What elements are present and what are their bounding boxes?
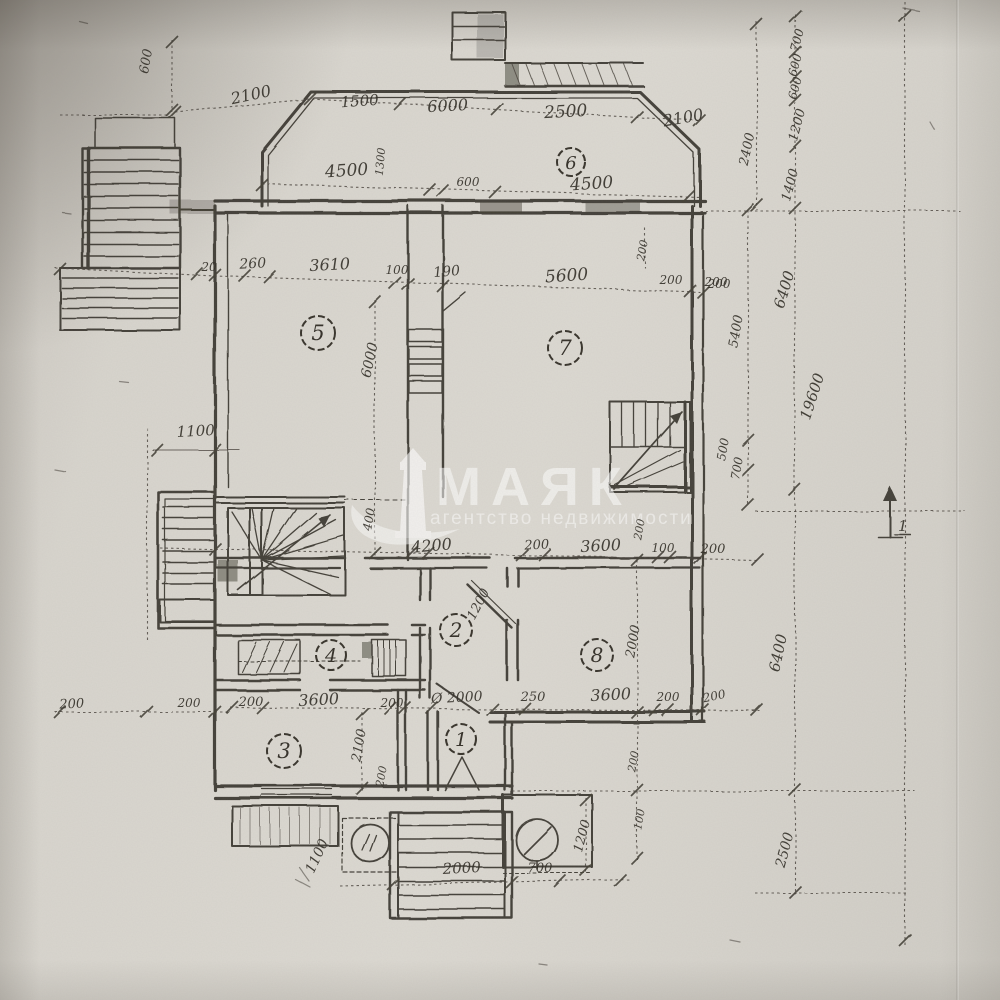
scanned-floorplan-photo: МАЯК агентство недвижимости 600210015006… <box>0 0 1000 1000</box>
paper-grain <box>0 0 1000 1000</box>
floorplan-drawing: МАЯК агентство недвижимости 600210015006… <box>0 0 1000 1000</box>
